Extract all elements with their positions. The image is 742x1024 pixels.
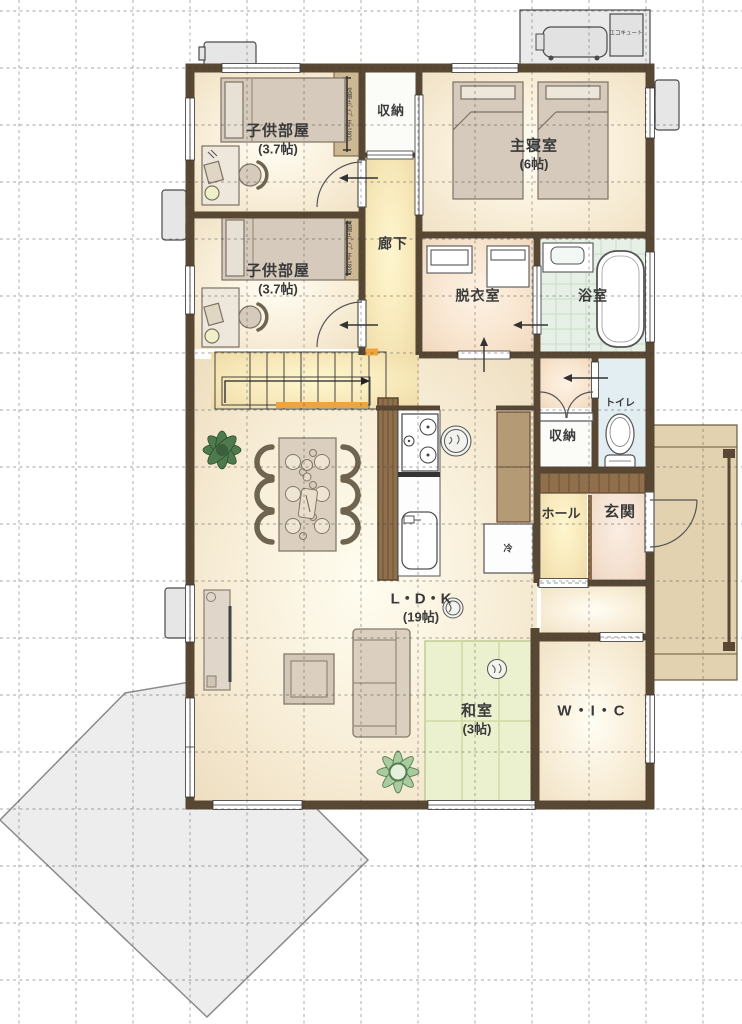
ecocute-unit	[520, 10, 650, 66]
stair-accent	[276, 402, 368, 408]
door-swing-arc	[317, 162, 362, 207]
room-label-dressing: 脱衣室	[456, 287, 501, 305]
door-leaf	[358, 160, 366, 207]
ac-unit-icon	[204, 42, 256, 66]
room-label-bath: 浴室	[578, 287, 608, 305]
shoe-cabinet	[539, 473, 645, 493]
room-label-storage-top: 収納	[377, 103, 405, 119]
staircase	[215, 349, 386, 410]
chair-icon	[239, 164, 261, 186]
living-furniture	[204, 590, 410, 737]
dressing-fixtures	[427, 246, 529, 287]
plant-icon	[203, 431, 241, 469]
ecocute-label: エコキュート	[609, 31, 642, 38]
dining-set	[257, 438, 358, 551]
room-label-entrance: 玄関	[604, 504, 636, 523]
room-label-ldk: L・D・K (19帖)	[391, 591, 452, 626]
floorplan-canvas: 子供部屋 (3.7帖) 収納 主寝室 (6帖) 子供部屋 (3.7帖) 廊下 脱…	[0, 0, 742, 1024]
room-label-washitsu: 和室 (3帖)	[461, 703, 493, 738]
room-label-hall: ホール	[541, 506, 580, 522]
plant-icon	[377, 751, 419, 793]
room-label-kids2: 子供部屋 (3.7帖)	[246, 263, 310, 298]
chair-icon	[239, 306, 261, 328]
ac-unit-icon	[162, 190, 186, 240]
room-label-wic: W・I・C	[557, 703, 626, 722]
room-label-storage-mid: 収納	[549, 428, 577, 444]
lamp-icon	[205, 186, 219, 200]
round-stool-icon	[488, 660, 507, 679]
pot-icon	[441, 426, 471, 456]
room-label-kids1: 子供部屋 (3.7帖)	[246, 123, 310, 158]
stove-icon	[402, 414, 438, 471]
door-swing-arc	[650, 500, 697, 547]
door-leaf	[358, 300, 366, 347]
tv-board	[204, 590, 230, 690]
ac-unit-icon	[655, 80, 679, 130]
closet-note-2: 枕棚+ﾊﾟｲﾌﾟ H=1800	[343, 220, 351, 273]
room-label-corridor: 廊下	[378, 235, 408, 253]
lamp-icon	[205, 329, 219, 343]
entrance-porch	[653, 425, 737, 680]
fridge-label: 冷	[503, 543, 512, 554]
room-label-toilet: トイレ	[605, 398, 635, 411]
room-label-master: 主寝室 (6帖)	[510, 138, 558, 173]
closet-note-1: 枕棚+ﾊﾟｲﾌﾟ H=1800	[343, 87, 351, 140]
washer-icon	[487, 246, 529, 287]
